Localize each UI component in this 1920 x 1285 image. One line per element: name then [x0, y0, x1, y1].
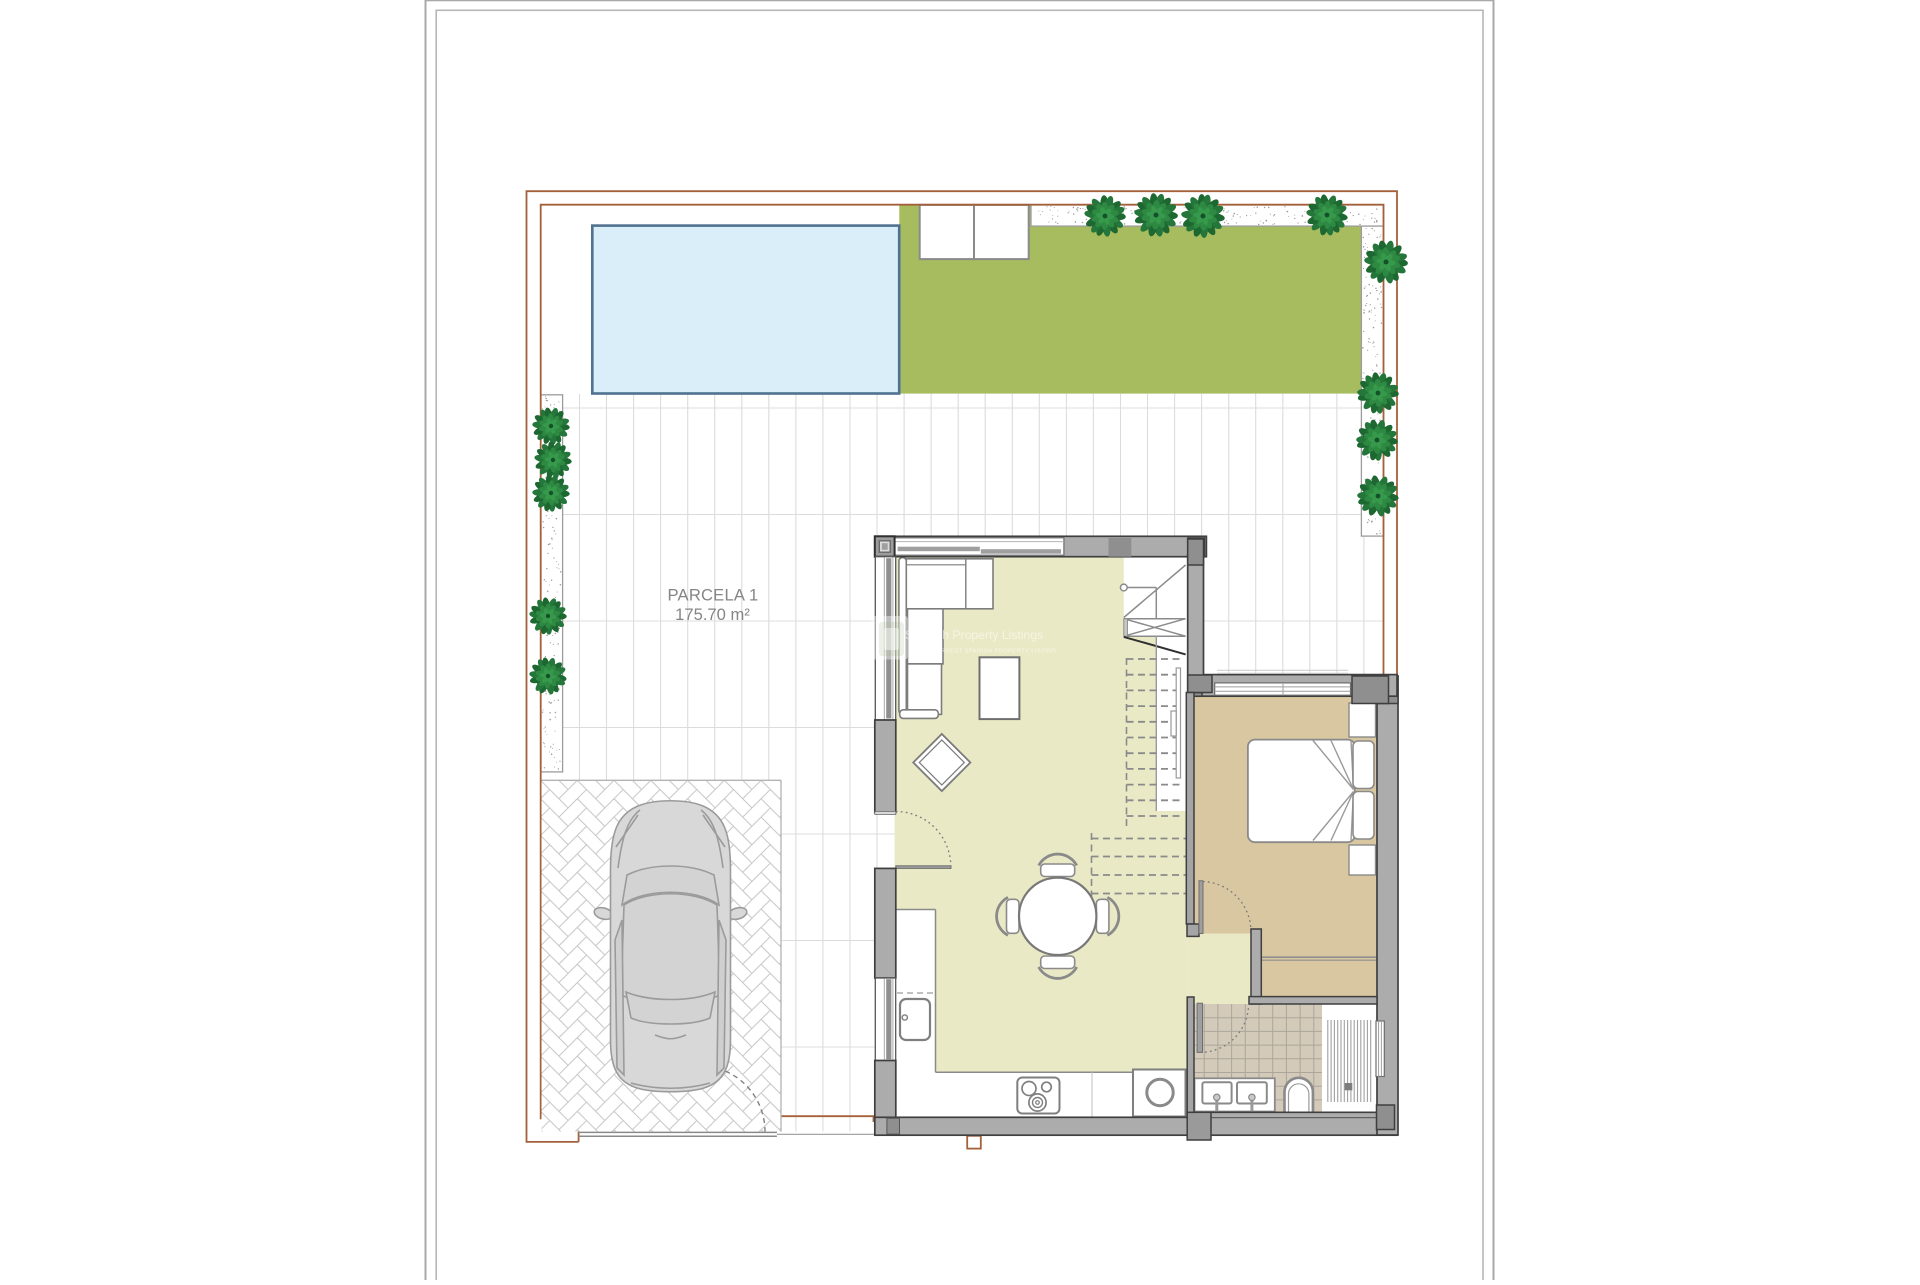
svg-text:Spanish Property Listings: Spanish Property Listings	[905, 628, 1043, 642]
svg-text:PARCELA 1: PARCELA 1	[668, 586, 759, 605]
svg-text:175.70 m²: 175.70 m²	[675, 605, 750, 624]
svg-text:THE LARGEST SPANISH PROPERTY L: THE LARGEST SPANISH PROPERTY LISTING	[918, 649, 1057, 655]
